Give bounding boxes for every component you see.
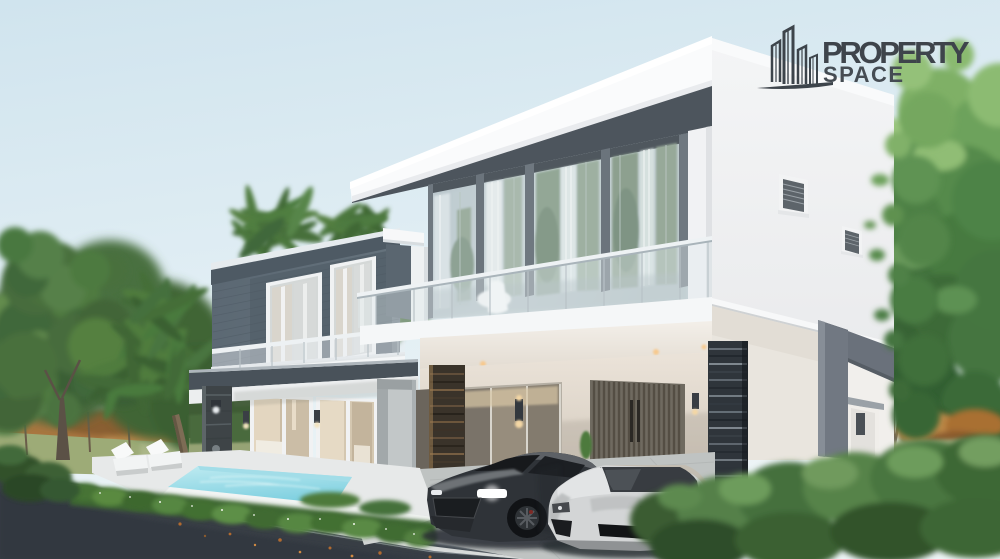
svg-text:SPACE: SPACE bbox=[823, 62, 905, 87]
